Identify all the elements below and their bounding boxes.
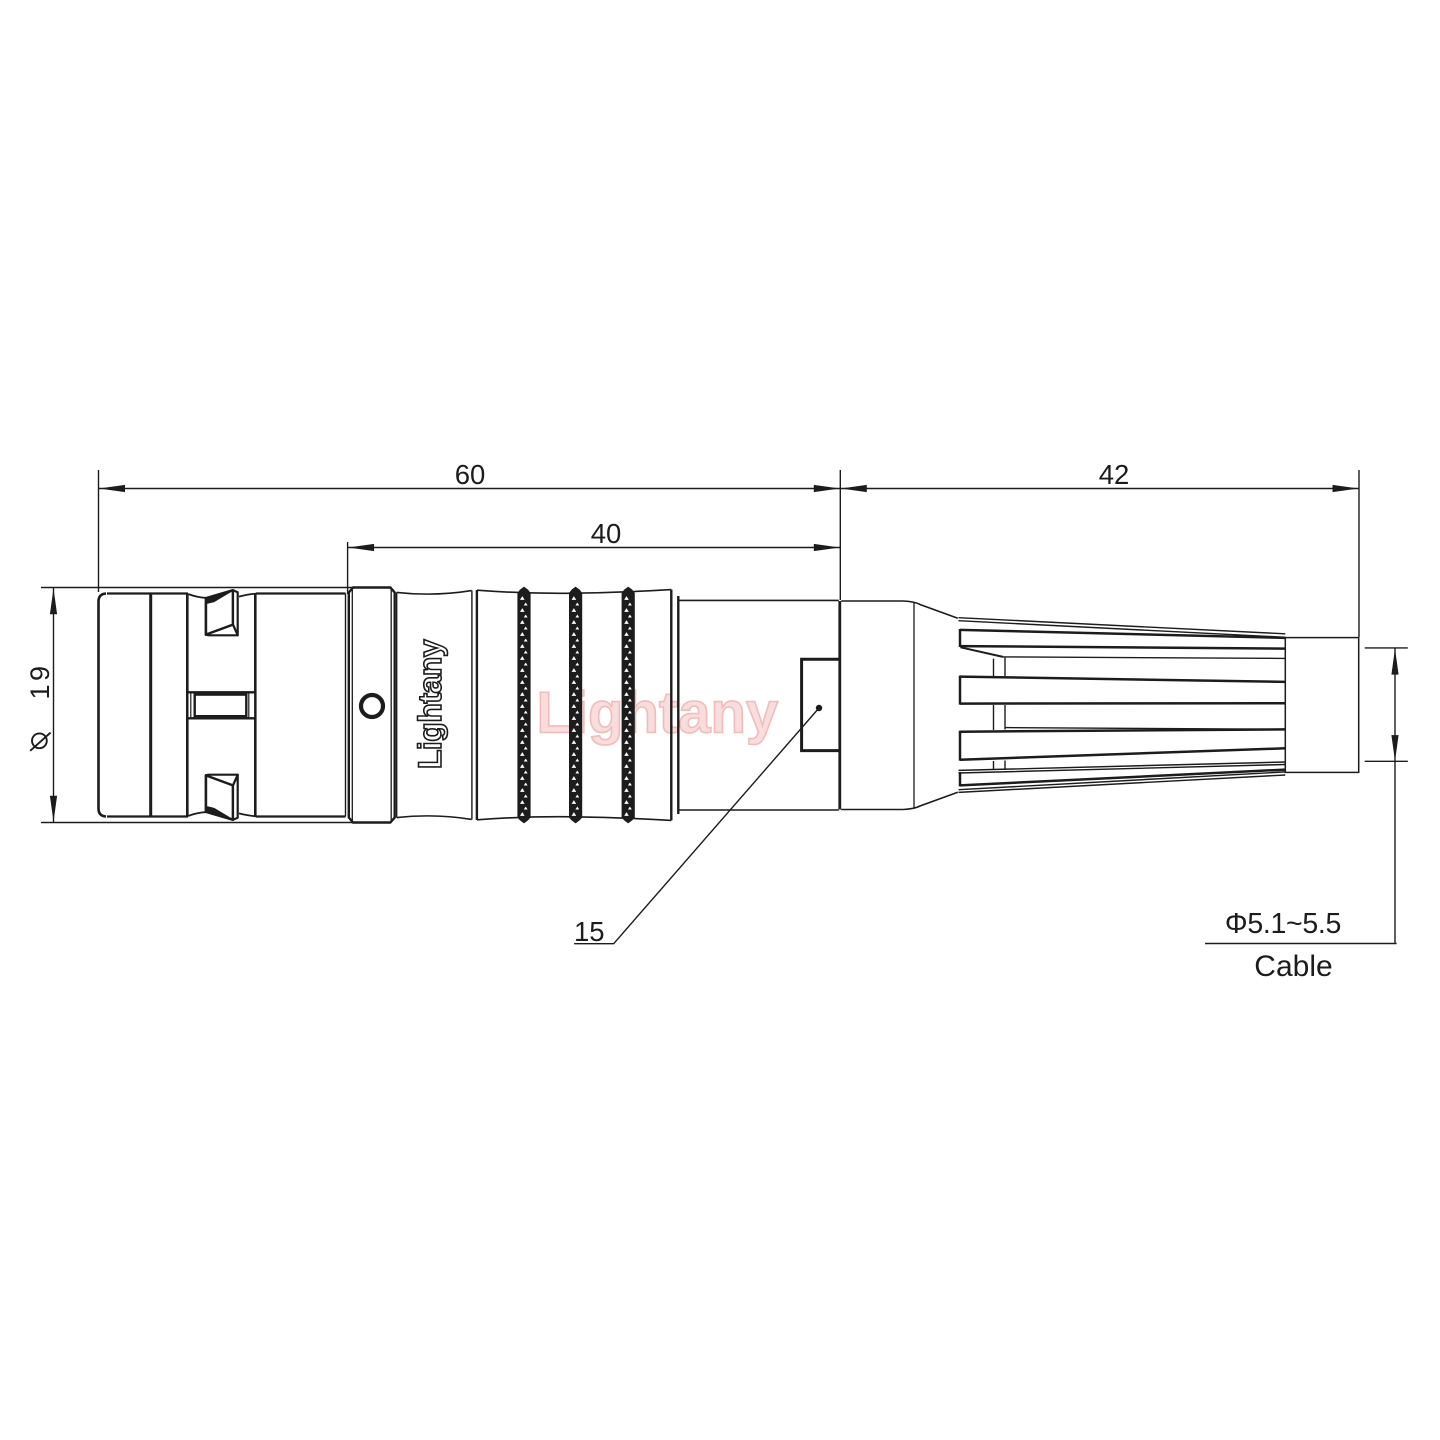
svg-text:60: 60 [455,459,486,490]
svg-text:15: 15 [574,916,605,947]
svg-text:Lightany: Lightany [412,639,448,769]
svg-text:40: 40 [591,518,622,549]
svg-text:42: 42 [1099,459,1130,490]
svg-text:Cable: Cable [1254,950,1332,983]
svg-text:19: 19 [25,662,55,699]
svg-text:Φ5.1~5.5: Φ5.1~5.5 [1225,908,1341,940]
